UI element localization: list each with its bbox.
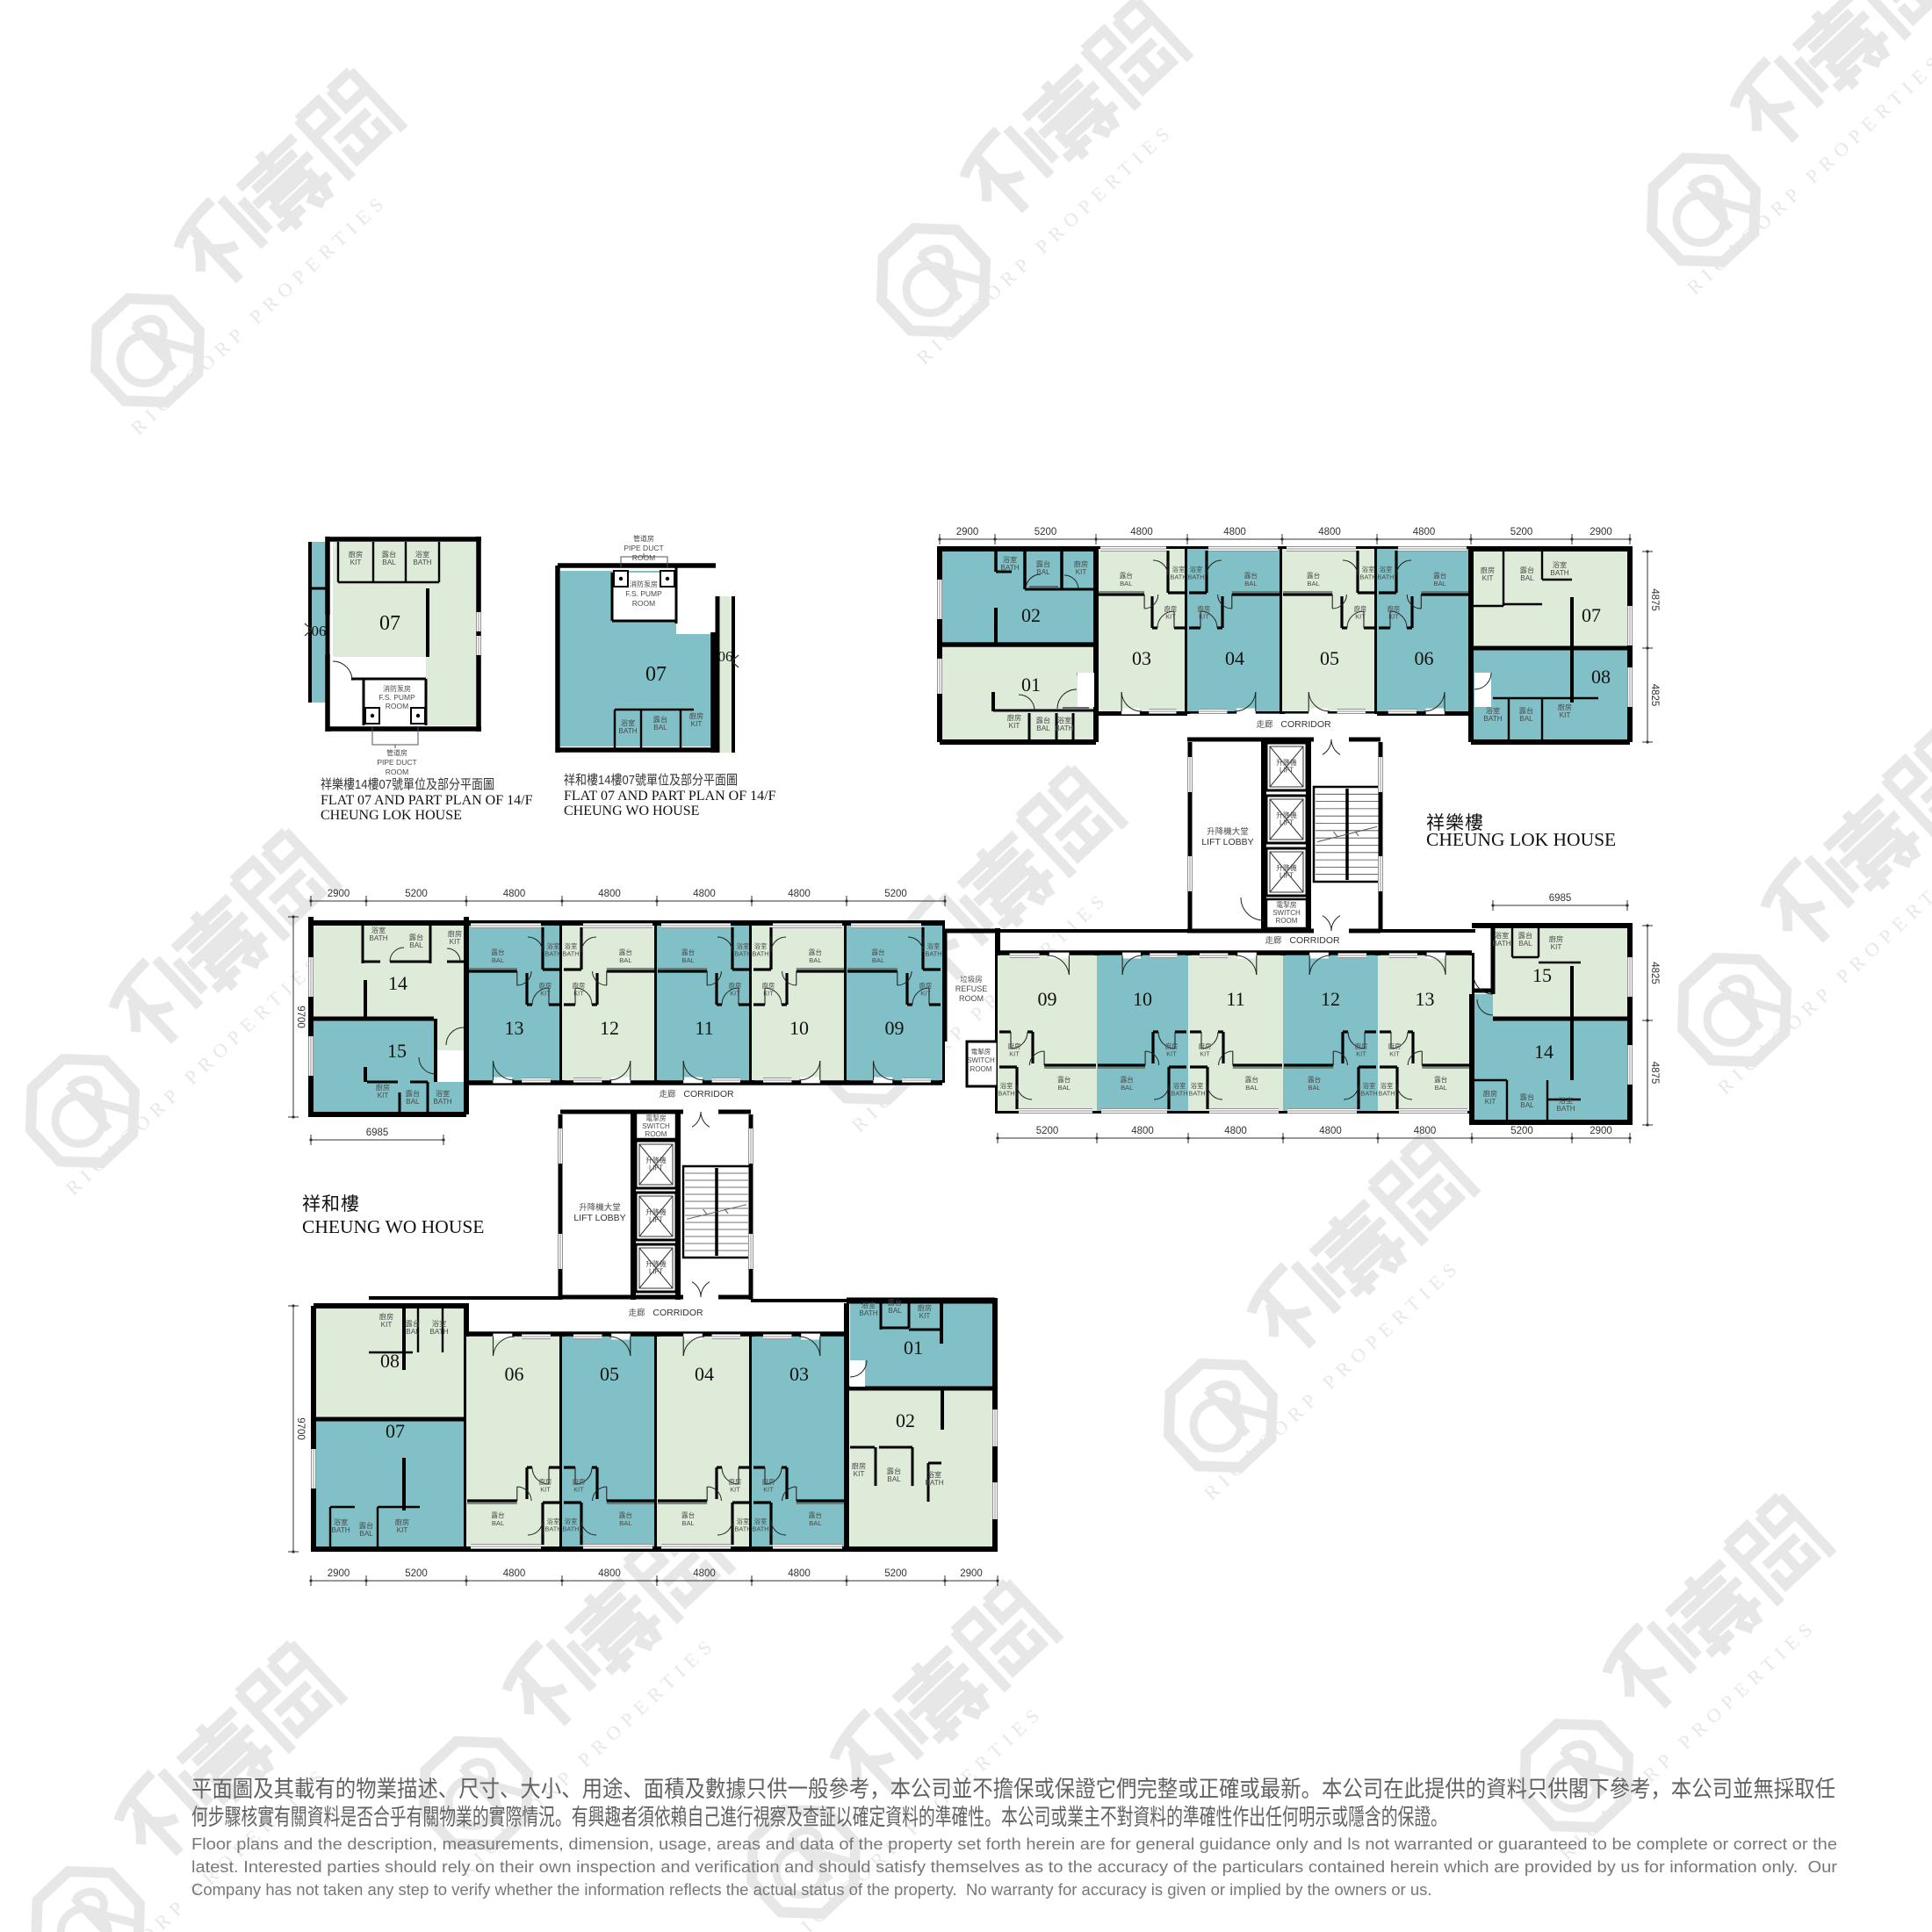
svg-text:2900: 2900 xyxy=(328,1568,350,1579)
svg-text:04: 04 xyxy=(695,1363,714,1385)
svg-text:07: 07 xyxy=(1582,604,1601,626)
svg-text:4825: 4825 xyxy=(1649,684,1660,707)
svg-text:廚房: 廚房 xyxy=(852,1461,866,1470)
svg-text:BAL: BAL xyxy=(653,724,667,732)
svg-text:CORRIDOR: CORRIDOR xyxy=(683,1089,734,1099)
svg-text:BAL: BAL xyxy=(1519,715,1533,723)
svg-text:BAL: BAL xyxy=(1308,1084,1320,1092)
svg-text:電掣房: 電掣房 xyxy=(1276,900,1297,909)
svg-text:浴室: 浴室 xyxy=(334,1517,348,1526)
svg-text:BATH: BATH xyxy=(618,727,637,735)
svg-text:BATH: BATH xyxy=(562,1525,579,1533)
svg-text:BAL: BAL xyxy=(382,559,396,566)
svg-text:5200: 5200 xyxy=(884,889,907,899)
svg-text:SWITCH: SWITCH xyxy=(1272,909,1301,917)
svg-text:露台: 露台 xyxy=(619,948,633,956)
svg-text:BAL: BAL xyxy=(681,1519,694,1527)
svg-text:KIT: KIT xyxy=(1388,613,1399,621)
svg-text:5200: 5200 xyxy=(884,1568,907,1579)
svg-text:露台: 露台 xyxy=(1520,1092,1534,1101)
svg-text:露台: 露台 xyxy=(491,1510,505,1519)
svg-text:4875: 4875 xyxy=(1649,588,1660,611)
svg-text:廚房: 廚房 xyxy=(1074,559,1088,568)
svg-text:06: 06 xyxy=(1415,647,1434,669)
svg-text:KIT: KIT xyxy=(691,720,703,728)
svg-text:KIT: KIT xyxy=(381,1321,393,1329)
svg-text:01: 01 xyxy=(1021,674,1041,696)
svg-text:BAL: BAL xyxy=(619,1519,631,1527)
svg-text:4800: 4800 xyxy=(1413,527,1436,537)
svg-text:BAL: BAL xyxy=(492,1519,504,1527)
svg-text:4800: 4800 xyxy=(503,1568,526,1579)
svg-text:08: 08 xyxy=(1591,666,1611,688)
svg-text:KIT: KIT xyxy=(1199,613,1209,621)
svg-text:廚房: 廚房 xyxy=(1483,1089,1497,1098)
svg-text:露台: 露台 xyxy=(681,1510,696,1519)
svg-text:KIT: KIT xyxy=(920,990,931,998)
svg-text:CORRIDOR: CORRIDOR xyxy=(652,1308,703,1318)
svg-text:電掣房: 電掣房 xyxy=(971,1047,991,1056)
svg-text:5200: 5200 xyxy=(405,1568,428,1579)
svg-text:露台: 露台 xyxy=(1036,716,1050,724)
svg-text:升降機: 升降機 xyxy=(1276,811,1297,819)
svg-text:BATH: BATH xyxy=(1170,573,1186,581)
svg-text:06: 06 xyxy=(718,648,733,665)
svg-text:06: 06 xyxy=(312,623,327,639)
svg-text:走廊: 走廊 xyxy=(1265,935,1282,946)
svg-text:LIFT LOBBY: LIFT LOBBY xyxy=(1201,837,1253,847)
svg-text:垃圾房: 垃圾房 xyxy=(960,975,983,984)
svg-text:02: 02 xyxy=(1021,604,1041,626)
svg-text:4800: 4800 xyxy=(1318,527,1341,537)
svg-text:BATH: BATH xyxy=(734,950,751,958)
svg-text:BAL: BAL xyxy=(1036,724,1050,732)
svg-text:走廊: 走廊 xyxy=(659,1089,676,1099)
svg-text:07: 07 xyxy=(645,663,667,686)
svg-text:LIFT LOBBY: LIFT LOBBY xyxy=(573,1213,625,1223)
svg-text:浴室: 浴室 xyxy=(1486,706,1500,715)
svg-text:15: 15 xyxy=(1532,964,1552,986)
svg-text:5200: 5200 xyxy=(1036,1126,1059,1136)
svg-text:BAL: BAL xyxy=(1518,940,1532,948)
svg-text:LIFT: LIFT xyxy=(649,1164,663,1172)
svg-text:4875: 4875 xyxy=(1649,1062,1660,1085)
svg-text:BAL: BAL xyxy=(492,956,504,964)
svg-text:KIT: KIT xyxy=(919,1312,931,1320)
svg-text:PIPE DUCT: PIPE DUCT xyxy=(377,758,416,767)
svg-text:浴室: 浴室 xyxy=(927,1470,941,1479)
svg-text:廚房: 廚房 xyxy=(349,550,363,559)
svg-text:BATH: BATH xyxy=(433,1098,451,1106)
svg-text:浴室: 浴室 xyxy=(861,1301,876,1309)
svg-text:廚房: 廚房 xyxy=(918,1303,932,1312)
svg-text:BATH: BATH xyxy=(734,1525,751,1533)
svg-text:2900: 2900 xyxy=(956,527,979,537)
svg-text:祥樂樓14樓07號單位及部分平面圖: 祥樂樓14樓07號單位及部分平面圖 xyxy=(321,777,494,792)
svg-text:4800: 4800 xyxy=(1414,1126,1437,1136)
svg-text:F.S. PUMP: F.S. PUMP xyxy=(625,589,662,598)
svg-text:露台: 露台 xyxy=(1520,566,1534,574)
svg-text:升降機: 升降機 xyxy=(645,1156,667,1164)
svg-text:BAL: BAL xyxy=(406,1098,420,1106)
svg-text:露台: 露台 xyxy=(406,1089,420,1098)
svg-text:浴室: 浴室 xyxy=(436,1089,450,1098)
svg-text:KIT: KIT xyxy=(763,990,774,998)
svg-text:6985: 6985 xyxy=(1549,893,1572,904)
svg-text:LIFT: LIFT xyxy=(649,1216,663,1224)
svg-text:4800: 4800 xyxy=(1223,527,1246,537)
svg-text:BATH: BATH xyxy=(369,934,387,942)
svg-text:露台: 露台 xyxy=(888,1298,902,1307)
svg-text:露台: 露台 xyxy=(871,948,885,956)
svg-text:露台: 露台 xyxy=(1245,1075,1259,1084)
svg-text:04: 04 xyxy=(1225,647,1244,669)
svg-text:ROOM: ROOM xyxy=(959,994,984,1003)
svg-text:KIT: KIT xyxy=(540,1486,551,1494)
svg-text:浴室: 浴室 xyxy=(621,718,635,727)
svg-text:KIT: KIT xyxy=(1389,1050,1400,1058)
svg-text:KIT: KIT xyxy=(1482,574,1494,582)
svg-text:SWITCH: SWITCH xyxy=(967,1056,995,1064)
svg-text:浴室: 浴室 xyxy=(1553,560,1567,569)
svg-text:4800: 4800 xyxy=(1131,1126,1154,1136)
svg-text:BATH: BATH xyxy=(1187,573,1204,581)
svg-text:BAL: BAL xyxy=(619,956,631,964)
svg-text:05: 05 xyxy=(600,1363,619,1385)
svg-text:KIT: KIT xyxy=(1355,613,1366,621)
svg-text:BATH: BATH xyxy=(1377,573,1394,581)
svg-text:露台: 露台 xyxy=(409,933,423,941)
svg-text:08: 08 xyxy=(380,1350,400,1372)
svg-text:KIT: KIT xyxy=(730,990,740,998)
svg-text:廚房: 廚房 xyxy=(395,1517,409,1526)
svg-text:BATH: BATH xyxy=(1378,1090,1395,1098)
svg-text:平面圖及其載有的物業描述、尺寸、大小、用途、面積及數據只供一: 平面圖及其載有的物業描述、尺寸、大小、用途、面積及數據只供一般參考，本公司並不擔… xyxy=(191,1776,1835,1802)
svg-text:露台: 露台 xyxy=(1433,571,1447,580)
svg-text:廚房: 廚房 xyxy=(1549,934,1563,943)
svg-text:KIT: KIT xyxy=(730,1486,740,1494)
svg-text:Floor plans and the descriptio: Floor plans and the description, measure… xyxy=(191,1835,1837,1853)
svg-text:露台: 露台 xyxy=(1036,559,1050,568)
svg-text:露台: 露台 xyxy=(681,948,696,956)
svg-text:2900: 2900 xyxy=(960,1568,983,1579)
svg-text:露台: 露台 xyxy=(1519,706,1533,715)
svg-text:CHEUNG LOK HOUSE: CHEUNG LOK HOUSE xyxy=(1426,829,1616,850)
svg-text:BATH: BATH xyxy=(413,559,431,566)
svg-text:廚房: 廚房 xyxy=(689,711,703,720)
svg-text:BAL: BAL xyxy=(409,941,423,949)
svg-text:REFUSE: REFUSE xyxy=(955,984,988,993)
svg-text:KIT: KIT xyxy=(450,938,461,946)
svg-text:KIT: KIT xyxy=(1200,1050,1210,1058)
svg-text:2900: 2900 xyxy=(1590,1126,1612,1136)
svg-text:15: 15 xyxy=(387,1040,407,1062)
svg-text:LIFT: LIFT xyxy=(1280,767,1294,775)
svg-text:4800: 4800 xyxy=(1130,527,1153,537)
svg-text:廚房: 廚房 xyxy=(1007,713,1021,722)
svg-text:KIT: KIT xyxy=(1009,722,1020,730)
svg-text:4800: 4800 xyxy=(693,1568,716,1579)
svg-text:KIT: KIT xyxy=(1076,568,1087,576)
svg-text:KIT: KIT xyxy=(1009,1050,1020,1058)
svg-text:浴室: 浴室 xyxy=(415,550,429,559)
svg-text:露台: 露台 xyxy=(1120,571,1134,580)
svg-text:BATH: BATH xyxy=(1360,1090,1377,1098)
svg-text:4800: 4800 xyxy=(1319,1126,1342,1136)
svg-text:09: 09 xyxy=(885,1017,905,1039)
svg-text:CORRIDOR: CORRIDOR xyxy=(1289,935,1340,946)
svg-text:ROOM: ROOM xyxy=(970,1065,992,1073)
svg-text:露台: 露台 xyxy=(359,1521,373,1530)
svg-text:LIFT: LIFT xyxy=(1280,872,1294,880)
svg-text:BAL: BAL xyxy=(1245,1084,1258,1092)
svg-text:祥和樓: 祥和樓 xyxy=(302,1194,360,1215)
svg-text:露台: 露台 xyxy=(1244,571,1258,580)
svg-text:BAL: BAL xyxy=(359,1530,373,1538)
svg-text:浴室: 浴室 xyxy=(1057,716,1071,724)
svg-text:BAL: BAL xyxy=(809,1519,821,1527)
svg-text:管道房: 管道房 xyxy=(386,748,407,757)
svg-text:浴室: 浴室 xyxy=(1003,555,1017,564)
svg-text:07: 07 xyxy=(379,612,400,635)
svg-text:何步驟核實有關資料是否合乎有關物業的實際情況。有興趣者須依賴: 何步驟核實有關資料是否合乎有關物業的實際情況。有興趣者須依賴自己進行視察及查証以… xyxy=(191,1804,1447,1830)
svg-text:03: 03 xyxy=(1132,647,1151,669)
svg-text:4800: 4800 xyxy=(598,889,621,899)
svg-text:BATH: BATH xyxy=(1359,573,1376,581)
svg-text:BAL: BAL xyxy=(406,1328,420,1336)
svg-text:9700: 9700 xyxy=(295,1417,306,1440)
svg-text:BATH: BATH xyxy=(1483,715,1502,723)
svg-text:BAL: BAL xyxy=(1058,1084,1071,1092)
svg-text:BAL: BAL xyxy=(681,956,694,964)
svg-text:BATH: BATH xyxy=(429,1328,448,1336)
svg-text:BAL: BAL xyxy=(1520,574,1534,582)
svg-text:Company has not taken any step: Company has not taken any step to verify… xyxy=(191,1880,1432,1899)
svg-text:BATH: BATH xyxy=(752,1525,768,1533)
svg-text:消防泵房: 消防泵房 xyxy=(630,580,658,588)
svg-text:BAL: BAL xyxy=(1520,1101,1534,1109)
svg-text:BAL: BAL xyxy=(887,1475,901,1483)
svg-text:KIT: KIT xyxy=(573,1486,584,1494)
svg-text:11: 11 xyxy=(695,1017,713,1039)
svg-text:2900: 2900 xyxy=(328,889,350,899)
svg-text:BATH: BATH xyxy=(1000,564,1019,572)
svg-text:廚房: 廚房 xyxy=(379,1312,393,1321)
svg-text:電掣房: 電掣房 xyxy=(645,1114,667,1122)
svg-text:KIT: KIT xyxy=(540,990,551,998)
svg-text:BATH: BATH xyxy=(925,1479,943,1487)
svg-text:BATH: BATH xyxy=(752,950,768,958)
svg-text:CHEUNG WO HOUSE: CHEUNG WO HOUSE xyxy=(302,1216,484,1237)
svg-text:5200: 5200 xyxy=(1510,1126,1533,1136)
svg-text:露台: 露台 xyxy=(1308,1075,1322,1084)
svg-text:02: 02 xyxy=(896,1409,915,1431)
svg-text:KIT: KIT xyxy=(397,1526,408,1534)
svg-text:4800: 4800 xyxy=(1224,1126,1247,1136)
svg-text:KIT: KIT xyxy=(1551,943,1562,951)
svg-text:BATH: BATH xyxy=(562,950,579,958)
svg-text:浴室: 浴室 xyxy=(371,926,386,934)
svg-text:露台: 露台 xyxy=(1307,571,1321,580)
svg-text:KIT: KIT xyxy=(378,1092,389,1099)
svg-text:5200: 5200 xyxy=(1510,527,1533,537)
svg-text:BAL: BAL xyxy=(1307,580,1319,588)
svg-text:露台: 露台 xyxy=(491,948,505,956)
svg-text:10: 10 xyxy=(789,1017,809,1039)
svg-text:4800: 4800 xyxy=(693,889,716,899)
svg-text:9700: 9700 xyxy=(295,1006,306,1028)
svg-text:KIT: KIT xyxy=(1165,613,1176,621)
svg-text:KIT: KIT xyxy=(1356,1050,1366,1058)
svg-text:09: 09 xyxy=(1038,988,1057,1010)
svg-text:KIT: KIT xyxy=(1485,1098,1496,1106)
svg-text:KIT: KIT xyxy=(1166,1050,1177,1058)
svg-text:BAL: BAL xyxy=(1435,1084,1447,1092)
svg-text:BATH: BATH xyxy=(1556,1105,1575,1113)
svg-text:BATH: BATH xyxy=(1550,569,1568,577)
svg-text:12: 12 xyxy=(1321,988,1340,1010)
svg-text:12: 12 xyxy=(600,1017,619,1039)
svg-text:4800: 4800 xyxy=(788,1568,811,1579)
svg-text:BAL: BAL xyxy=(1121,1084,1133,1092)
svg-text:BATH: BATH xyxy=(1492,940,1510,948)
svg-text:ROOM: ROOM xyxy=(386,702,408,710)
svg-text:露台: 露台 xyxy=(619,1510,633,1519)
svg-text:4800: 4800 xyxy=(598,1568,621,1579)
svg-text:BAL: BAL xyxy=(1120,580,1132,588)
svg-text:F.S. PUMP: F.S. PUMP xyxy=(378,693,415,702)
svg-text:ROOM: ROOM xyxy=(1276,917,1298,925)
svg-text:廚房: 廚房 xyxy=(1558,703,1572,711)
svg-text:升降機: 升降機 xyxy=(645,1259,667,1268)
svg-text:6985: 6985 xyxy=(366,1128,389,1138)
svg-text:露台: 露台 xyxy=(653,715,667,724)
svg-text:ROOM: ROOM xyxy=(645,1130,667,1138)
svg-text:浴室: 浴室 xyxy=(1559,1096,1573,1105)
svg-text:消防泵房: 消防泵房 xyxy=(383,684,411,693)
svg-text:ROOM: ROOM xyxy=(632,553,655,562)
svg-text:露台: 露台 xyxy=(1057,1075,1071,1084)
svg-text:BAL: BAL xyxy=(809,956,821,964)
svg-text:BATH: BATH xyxy=(1055,724,1073,732)
svg-text:2900: 2900 xyxy=(1590,527,1612,537)
svg-text:浴室: 浴室 xyxy=(432,1319,446,1328)
svg-text:BATH: BATH xyxy=(544,950,561,958)
svg-text:FLAT 07 AND PART PLAN OF 14/F: FLAT 07 AND PART PLAN OF 14/F xyxy=(321,793,533,808)
svg-text:KIT: KIT xyxy=(763,1486,774,1494)
svg-text:03: 03 xyxy=(789,1363,809,1385)
svg-text:露台: 露台 xyxy=(887,1467,901,1475)
svg-text:ROOM: ROOM xyxy=(632,599,655,608)
svg-text:07: 07 xyxy=(386,1420,405,1442)
svg-text:14: 14 xyxy=(388,972,407,994)
svg-text:latest. Interested parties sho: latest. Interested parties should rely o… xyxy=(191,1857,1837,1876)
svg-text:CHEUNG LOK HOUSE: CHEUNG LOK HOUSE xyxy=(321,808,462,823)
svg-text:FLAT 07 AND PART PLAN OF 14/F: FLAT 07 AND PART PLAN OF 14/F xyxy=(564,789,776,804)
svg-text:走廊: 走廊 xyxy=(628,1308,645,1318)
svg-text:5200: 5200 xyxy=(1034,527,1057,537)
svg-text:露台: 露台 xyxy=(1518,931,1532,940)
svg-text:KIT: KIT xyxy=(854,1470,865,1478)
svg-text:CORRIDOR: CORRIDOR xyxy=(1280,719,1331,730)
svg-text:管道房: 管道房 xyxy=(633,534,654,543)
svg-text:BAL: BAL xyxy=(872,956,884,964)
svg-text:BATH: BATH xyxy=(331,1526,350,1534)
svg-text:升降機: 升降機 xyxy=(1276,863,1297,872)
svg-text:5200: 5200 xyxy=(405,889,428,899)
svg-text:BATH: BATH xyxy=(1171,1090,1187,1098)
svg-text:KIT: KIT xyxy=(350,559,362,566)
svg-text:升降機: 升降機 xyxy=(645,1207,667,1216)
svg-text:浴室: 浴室 xyxy=(1495,931,1509,940)
svg-text:KIT: KIT xyxy=(573,990,584,998)
svg-text:升降機: 升降機 xyxy=(1276,758,1297,767)
svg-text:BATH: BATH xyxy=(998,1090,1014,1098)
svg-text:BAL: BAL xyxy=(1244,580,1257,588)
svg-text:06: 06 xyxy=(505,1363,524,1385)
svg-text:4800: 4800 xyxy=(503,889,526,899)
svg-text:走廊: 走廊 xyxy=(1256,719,1273,730)
svg-text:露台: 露台 xyxy=(382,550,396,559)
svg-text:4825: 4825 xyxy=(1649,962,1660,984)
svg-text:升降機大堂: 升降機大堂 xyxy=(1207,826,1249,837)
svg-text:PIPE DUCT: PIPE DUCT xyxy=(624,544,663,552)
svg-text:BATH: BATH xyxy=(925,950,941,958)
svg-text:BAL: BAL xyxy=(1434,580,1446,588)
svg-text:01: 01 xyxy=(904,1337,923,1359)
svg-text:廚房: 廚房 xyxy=(448,929,462,938)
svg-text:05: 05 xyxy=(1320,647,1339,669)
svg-text:露台: 露台 xyxy=(406,1319,420,1328)
svg-text:LIFT: LIFT xyxy=(1280,819,1294,827)
svg-text:KIT: KIT xyxy=(1560,711,1571,719)
svg-text:13: 13 xyxy=(505,1017,524,1039)
svg-text:14: 14 xyxy=(1534,1041,1554,1063)
svg-text:廚房: 廚房 xyxy=(376,1083,390,1092)
svg-text:SWITCH: SWITCH xyxy=(642,1122,670,1130)
svg-text:祥和樓14樓07號單位及部分平面圖: 祥和樓14樓07號單位及部分平面圖 xyxy=(564,773,738,788)
svg-text:廚房: 廚房 xyxy=(1481,566,1495,574)
svg-text:BATH: BATH xyxy=(544,1525,561,1533)
svg-text:露台: 露台 xyxy=(1434,1075,1448,1084)
svg-text:BATH: BATH xyxy=(1188,1090,1205,1098)
svg-text:10: 10 xyxy=(1133,988,1152,1010)
svg-text:露台: 露台 xyxy=(809,1510,823,1519)
svg-text:升降機大堂: 升降機大堂 xyxy=(579,1202,621,1213)
svg-text:11: 11 xyxy=(1226,988,1244,1010)
svg-text:露台: 露台 xyxy=(1121,1075,1135,1084)
svg-text:4800: 4800 xyxy=(788,889,811,899)
svg-text:ROOM: ROOM xyxy=(386,768,408,776)
svg-text:BAL: BAL xyxy=(888,1307,902,1315)
svg-text:CHEUNG WO HOUSE: CHEUNG WO HOUSE xyxy=(564,804,699,818)
svg-text:13: 13 xyxy=(1416,988,1435,1010)
svg-text:露台: 露台 xyxy=(809,948,823,956)
svg-text:BATH: BATH xyxy=(859,1309,877,1317)
svg-text:LIFT: LIFT xyxy=(649,1268,663,1276)
